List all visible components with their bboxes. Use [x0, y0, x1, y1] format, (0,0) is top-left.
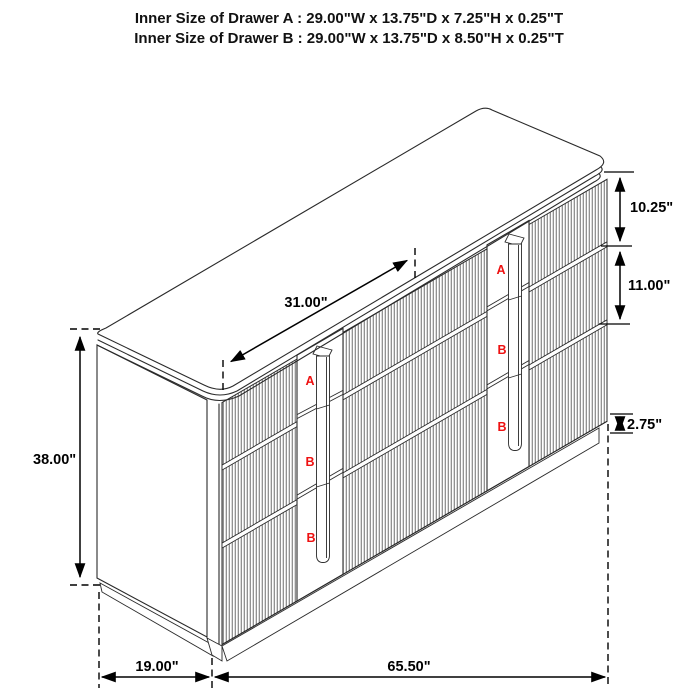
drawer-label-left-b2: B — [306, 531, 315, 545]
header-line-1: Inner Size of Drawer A : 29.00"W x 13.75… — [135, 10, 563, 27]
dimension-label-1025: 10.25" — [630, 200, 673, 216]
drawer-label-right-a: A — [496, 263, 505, 277]
dimension-label-31: 31.00" — [284, 295, 327, 311]
dimension-diagram: Inner Size of Drawer A : 29.00"W x 13.75… — [0, 0, 700, 700]
dimension-label-6550: 65.50" — [387, 659, 430, 675]
dimension-label-1100: 11.00" — [628, 278, 670, 294]
dimension-right-column: 10.25" 11.00" 2.75" — [599, 172, 673, 433]
drawer-label-right-b2: B — [497, 420, 506, 434]
fluted-section-left — [222, 359, 297, 644]
cabinet-illustration: A B B A B B — [97, 108, 610, 661]
dimension-label-1900: 19.00" — [135, 659, 178, 675]
dimension-overall-height: 38.00" — [33, 329, 101, 585]
stile-right — [487, 221, 529, 491]
drawer-label-left-b1: B — [305, 455, 314, 469]
fluted-section-right — [529, 179, 607, 466]
diagram-canvas: Inner Size of Drawer A : 29.00"W x 13.75… — [0, 0, 700, 700]
dimension-label-275: 2.75" — [627, 417, 662, 433]
drawer-label-left-a: A — [305, 374, 314, 388]
dimension-label-3800: 38.00" — [33, 452, 76, 468]
header: Inner Size of Drawer A : 29.00"W x 13.75… — [134, 10, 563, 47]
header-line-2: Inner Size of Drawer B : 29.00"W x 13.75… — [134, 30, 563, 47]
drawer-label-right-b1: B — [497, 343, 506, 357]
